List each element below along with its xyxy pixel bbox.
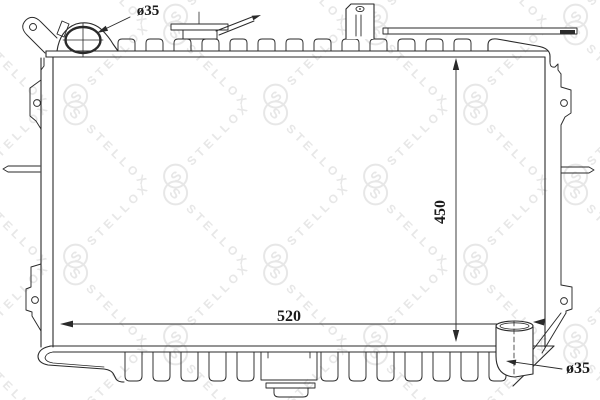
radiator-drawing: ø35 450 520 ø35 [0, 0, 600, 400]
catalog-drawing-canvas: SSTELLOXSSTELLOXSSTELLOXSSTELLOXSSTELLOX… [0, 0, 600, 400]
filler-cap [171, 12, 261, 39]
core [41, 57, 545, 347]
dimension-450 [453, 58, 459, 342]
right-lower-mount-hole [561, 298, 568, 305]
left-side-plate [26, 80, 41, 331]
top-ribs [118, 39, 471, 51]
top-tank [46, 39, 561, 74]
leader-filler-diameter [97, 17, 130, 33]
right-upper-mount-hole [561, 100, 568, 107]
dimension-520-right-arrow [533, 319, 545, 326]
top-left-bracket [23, 17, 69, 70]
right-side-plate [532, 74, 572, 353]
label-core-width: 520 [277, 308, 301, 325]
label-filler-diameter: ø35 [137, 3, 160, 19]
bottom-ribs [125, 352, 506, 381]
drain-plug [266, 383, 315, 397]
side-pin-right [561, 167, 594, 173]
side-pin-left [3, 166, 40, 172]
bottom-tank [38, 346, 554, 386]
top-flat-bar [383, 28, 577, 34]
left-lower-mount-hole [32, 297, 39, 304]
label-core-height: 450 [432, 200, 449, 224]
left-upper-mount-hole [34, 100, 41, 107]
filler-neck [57, 23, 118, 57]
outlet-pipe [496, 321, 533, 377]
label-outlet-diameter: ø35 [566, 360, 590, 377]
top-bracket [346, 4, 374, 39]
